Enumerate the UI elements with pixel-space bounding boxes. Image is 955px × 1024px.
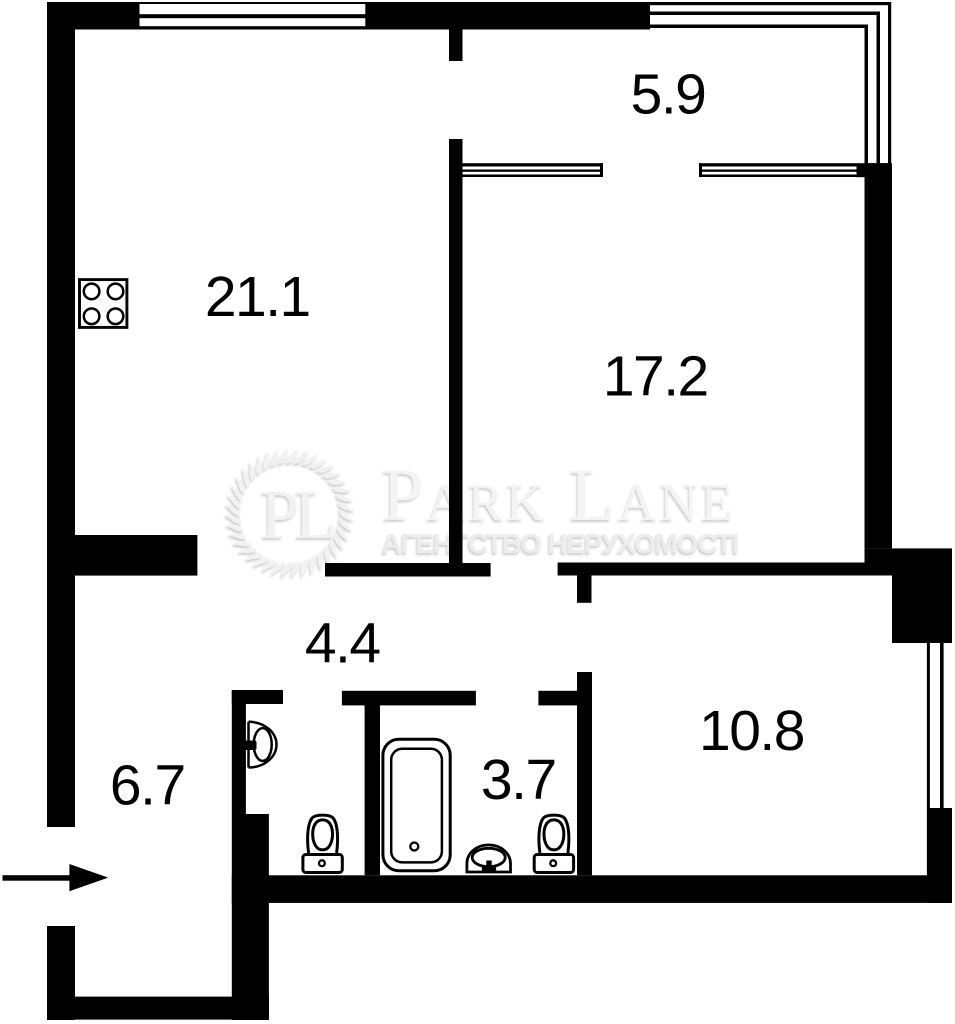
- svg-text:4.4: 4.4: [305, 612, 381, 676]
- svg-text:5.9: 5.9: [631, 62, 706, 126]
- svg-text:PL: PL: [260, 477, 333, 554]
- svg-text:Park Lane: Park Lane: [382, 454, 736, 537]
- svg-text:10.8: 10.8: [699, 699, 804, 763]
- svg-text:21.1: 21.1: [205, 265, 310, 329]
- svg-text:3.7: 3.7: [481, 748, 556, 812]
- svg-text:17.2: 17.2: [603, 344, 708, 408]
- svg-text:АГЕНТСТВО НЕРУХОМОСТІ: АГЕНТСТВО НЕРУХОМОСТІ: [382, 528, 738, 559]
- svg-text:6.7: 6.7: [110, 753, 185, 817]
